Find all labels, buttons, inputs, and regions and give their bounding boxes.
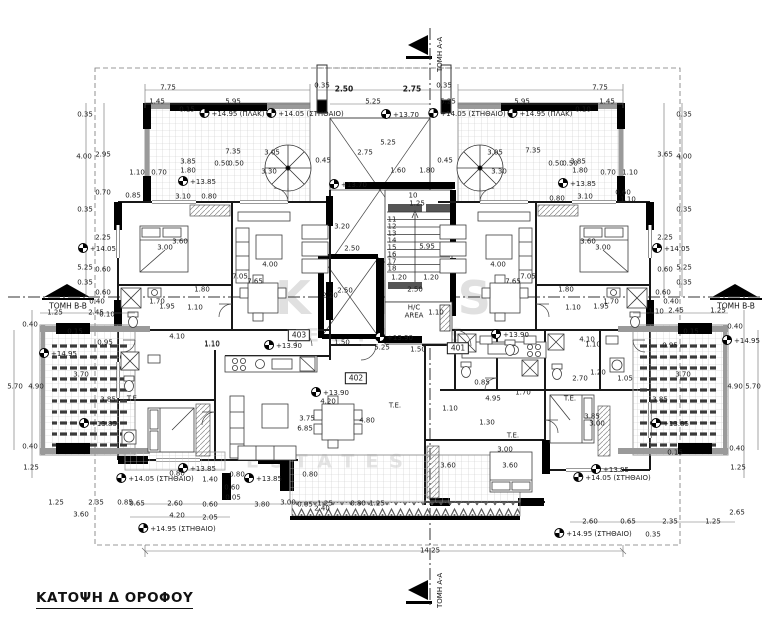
floor-plan-drawing xyxy=(0,0,768,636)
living-room-left xyxy=(236,212,328,321)
spiral-stair-left xyxy=(265,145,311,191)
spiral-stair-right xyxy=(457,145,503,191)
living-room-402 xyxy=(230,396,362,460)
drawing-title: ΚΑΤΟΨΗ Δ ΟΡΟΦΟΥ xyxy=(36,590,193,609)
balcony-bottom xyxy=(125,452,520,520)
hc-area xyxy=(378,302,452,344)
balcony-wing-right xyxy=(618,323,728,455)
floor-plan-canvas: KADISESTATESESTATES xyxy=(0,0,768,636)
kitchen-402 xyxy=(225,356,317,372)
